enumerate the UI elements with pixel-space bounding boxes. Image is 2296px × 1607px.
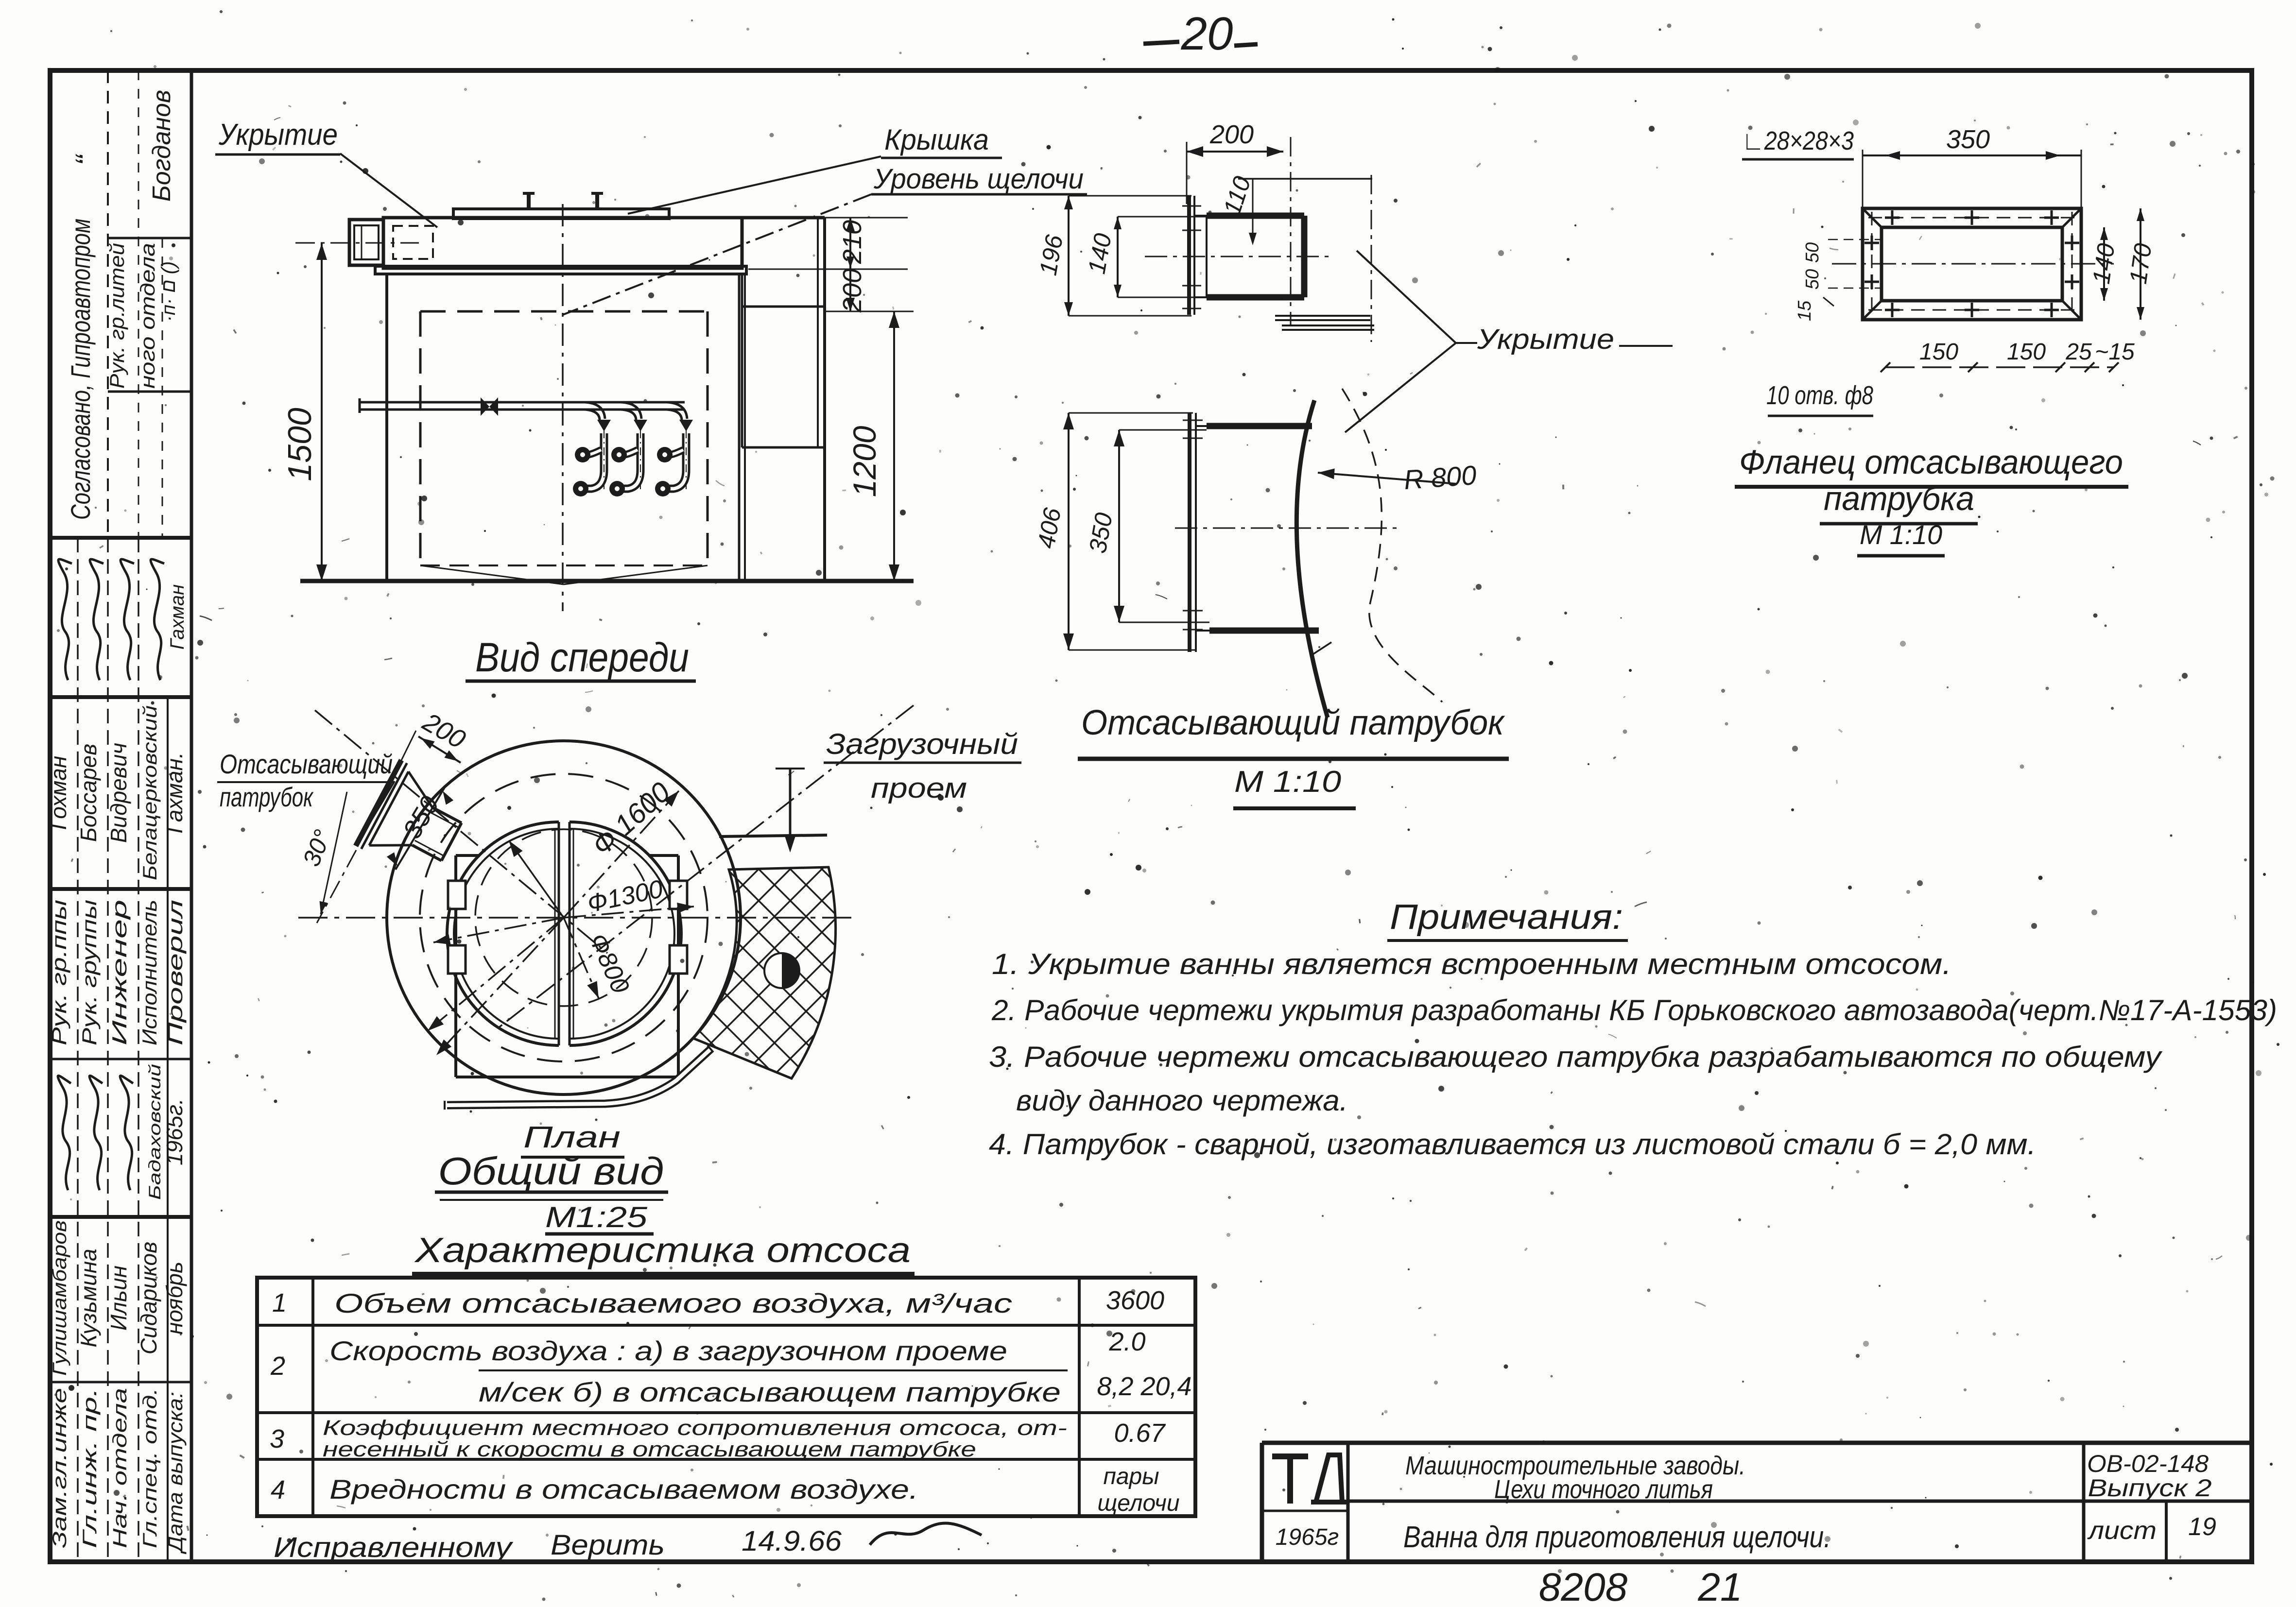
svg-text:М 1:10: М 1:10 [1234,765,1341,799]
svg-text:25: 25 [2065,339,2092,365]
svg-text:М 1:10: М 1:10 [1860,519,1942,550]
svg-text:Богданов: Богданов [148,90,176,202]
svg-text:2. Рабочие чертежи укрытия: 2. Рабочие чертежи укрытия разработаны К… [991,994,2277,1026]
svg-text:Гахман.: Гахман. [162,752,187,833]
svg-text:R 800: R 800 [1403,460,1477,495]
svg-text:8208: 8208 [1539,1565,1628,1607]
svg-text:1. Укрытие ванны является в: 1. Укрытие ванны является встроенным мес… [992,948,1951,980]
svg-text:“: “ [69,154,104,166]
svg-text:м/сек б) в отсасывающем: м/сек б) в отсасывающем патрубке [479,1377,1061,1407]
svg-text:150: 150 [2007,339,2046,365]
svg-text:350: 350 [1946,125,1990,154]
svg-text:1965г: 1965г [1276,1524,1339,1550]
svg-text:Объем отсасываемого воздуха,: Объем отсасываемого воздуха, м³/час [334,1288,1012,1318]
svg-text:Уровень щелочи: Уровень щелочи [873,163,1084,195]
svg-text:Нач. отдела: Нач. отдела [109,1388,131,1548]
svg-text:1: 1 [272,1288,287,1317]
svg-text:патрубка: патрубка [1824,479,1974,517]
svg-text:Ильин: Ильин [106,1265,131,1331]
svg-text:~15: ~15 [2095,339,2135,365]
svg-text:·п· ם (): ·п· ם () [158,261,179,322]
svg-text:50: 50 [1802,242,1823,263]
svg-text:0.67: 0.67 [1114,1419,1166,1448]
svg-text:Верить: Верить [551,1529,665,1561]
svg-text:щелочи: щелочи [1097,1490,1179,1516]
svg-text:Укрытие: Укрытие [1477,324,1614,355]
svg-text:проем: проем [871,772,967,804]
svg-text:Гахман: Гахман [167,584,188,650]
svg-text:210: 210 [838,220,867,264]
svg-text:2.0: 2.0 [1108,1327,1145,1356]
svg-text:20: 20 [1181,8,1233,60]
svg-text:Ванна для приготовления щел: Ванна для приготовления щелочи. [1403,1521,1831,1554]
svg-text:19: 19 [2188,1513,2216,1541]
svg-text:Рук. группы: Рук. группы [78,900,101,1045]
svg-text:1500: 1500 [281,408,318,481]
svg-text:М1:25: М1:25 [545,1201,648,1233]
svg-text:патрубок: патрубок [220,782,314,812]
svg-text:Кузьмина: Кузьмина [76,1248,101,1347]
svg-text:Цехи точного литья: Цехи точного литья [1494,1475,1713,1504]
svg-text:Отсасывающий: Отсасывающий [220,749,393,779]
svg-text:3. Рабочие чертежи отсасываю: 3. Рабочие чертежи отсасывающего патрубк… [989,1041,2163,1073]
svg-text:4. Патрубок - сварной, изготав: 4. Патрубок - сварной, изготавливается и… [989,1128,2036,1161]
svg-text:∟28×28×3: ∟28×28×3 [1742,126,1854,155]
svg-text:10 отв. ф8: 10 отв. ф8 [1766,381,1873,410]
svg-text:пары: пары [1103,1464,1159,1489]
svg-text:170: 170 [2124,241,2157,286]
svg-text:Укрытие: Укрытие [218,118,338,152]
svg-text:Исполнитель: Исполнитель [138,900,161,1045]
svg-text:Загрузочный: Загрузочный [826,728,1018,760]
svg-text:Гулишамбаров: Гулишамбаров [49,1220,70,1376]
svg-text:Проверил: Проверил [164,900,187,1045]
svg-text:Исправленному: Исправленному [274,1532,513,1563]
svg-text:Скорость воздуха : а) в загру: Скорость воздуха : а) в загрузочном прое… [329,1335,1007,1366]
svg-text:Гл.инж. пр.: Гл.инж. пр. [79,1388,101,1548]
svg-text:Согласовано, Гипроавтопром: Согласовано, Гипроавтопром [65,219,96,520]
svg-text:Сидариков: Сидариков [136,1242,161,1354]
svg-text:Зам.гл.инже: Зам.гл.инже [49,1388,70,1548]
svg-text:1965г.: 1965г. [162,1098,187,1165]
svg-text:Вид спереди: Вид спереди [475,634,689,680]
svg-text:Общий вид: Общий вид [438,1149,664,1193]
svg-text:Гл.спец. отд.: Гл.спец. отд. [139,1388,161,1548]
svg-text:4: 4 [271,1475,285,1504]
svg-text:Коэффициент местного сопротивл: Коэффициент местного сопротивления отсос… [323,1416,1067,1440]
svg-text:ного отдела: ного отдела [136,243,159,389]
svg-text:15: 15 [1795,300,1815,321]
svg-text:200: 200 [1209,120,1254,149]
svg-text:Рук. гр.ппы: Рук. гр.ппы [48,900,70,1045]
svg-text:Боссарев: Боссарев [76,744,101,842]
svg-text:ОВ-02-148: ОВ-02-148 [2087,1450,2209,1477]
svg-text:Белацерковский: Белацерковский [139,705,161,880]
svg-text:несенный к скорости в отсасыва: несенный к скорости в отсасывающем патру… [323,1437,976,1461]
svg-text:Вредности в отсасываемом воз: Вредности в отсасываемом воздухе. [329,1474,918,1504]
svg-text:1200: 1200 [846,426,882,497]
svg-text:Выпуск 2: Выпуск 2 [2088,1474,2212,1502]
svg-text:Дата выпуска:: Дата выпуска: [164,1392,187,1554]
svg-text:Гохман: Гохман [46,756,71,830]
svg-text:Фланец отсасывающего: Фланец отсасывающего [1739,443,2123,481]
svg-text:8,2 20,4: 8,2 20,4 [1097,1372,1191,1401]
svg-text:14.9.66: 14.9.66 [742,1525,842,1557]
svg-text:Характеристика отсоса: Характеристика отсоса [414,1231,911,1270]
svg-text:Рук. гр.литей: Рук. гр.литей [105,243,128,389]
svg-text:3: 3 [270,1424,284,1453]
svg-text:200: 200 [838,269,867,313]
svg-text:Примечания:: Примечания: [1390,898,1623,937]
svg-text:Инженер: Инженер [108,900,131,1045]
svg-text:лист: лист [2087,1517,2157,1545]
svg-text:Крышка: Крышка [884,123,989,156]
svg-text:21: 21 [1697,1565,1742,1607]
svg-text:140: 140 [2088,241,2120,286]
svg-text:2: 2 [270,1351,285,1381]
svg-text:150: 150 [1919,339,1958,365]
svg-text:Видревич: Видревич [106,743,131,843]
svg-text:ноябрь: ноябрь [162,1262,187,1334]
svg-text:50: 50 [1802,269,1823,290]
svg-text:виду данного чертежа.: виду данного чертежа. [1016,1084,1348,1117]
svg-text:Отсасывающий патрубок: Отсасывающий патрубок [1081,703,1505,742]
